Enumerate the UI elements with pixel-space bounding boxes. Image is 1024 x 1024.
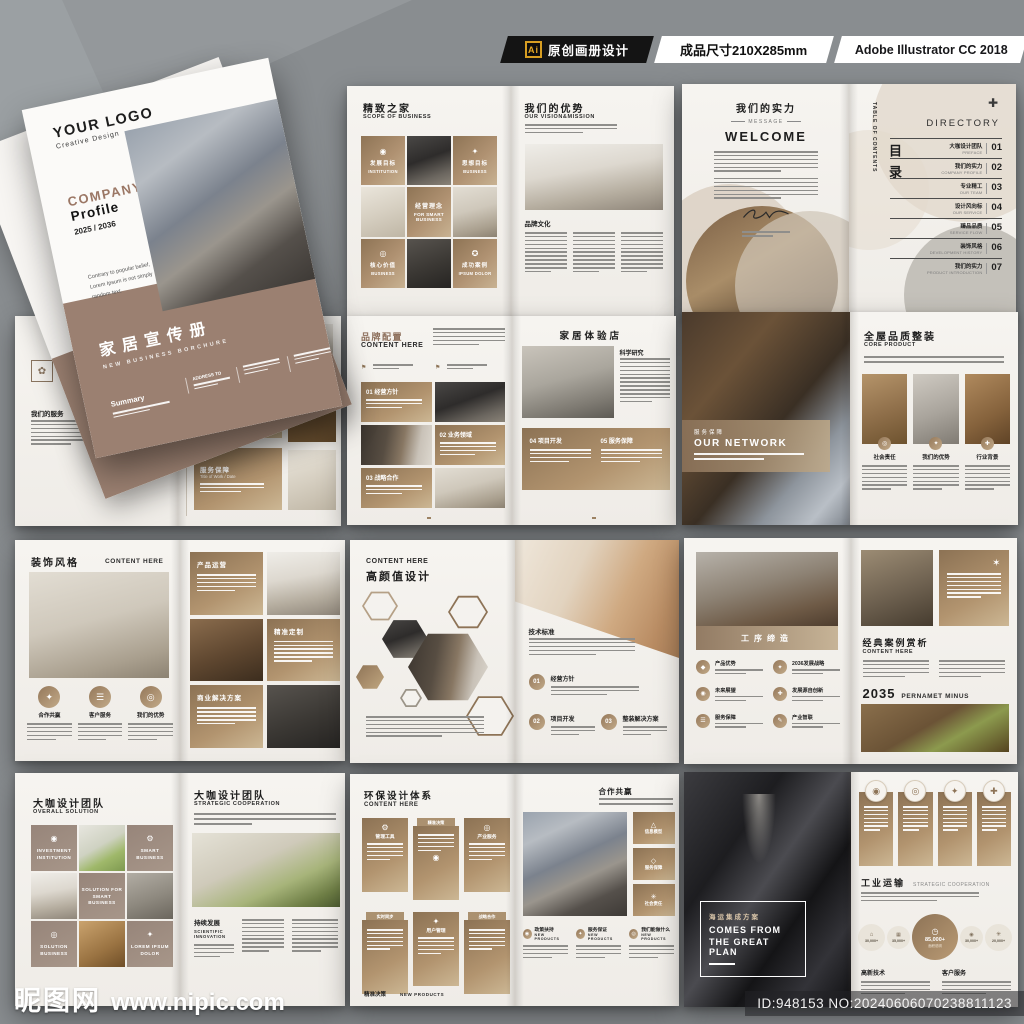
- adobe-illustrator-icon: Ai: [525, 41, 542, 58]
- photo-hallway: [190, 619, 263, 682]
- photo-tv-wall: [696, 552, 838, 626]
- panel-col: 04 项目开发: [530, 436, 591, 482]
- spread-design-hex: CONTENT HERE 高颜值设计 技术标准 01 经营方针 02 项目开发 …: [350, 540, 679, 763]
- spread-industrial: 海运集成方案 COMES FROM THE GREAT PLAN ◉ ◎ ✦ ✚…: [684, 772, 1018, 1007]
- spread-brand-config: 品牌配置 CONTENT HERE ⚑ ⚑ 01 经营方针 02 业务领域 03…: [347, 316, 676, 525]
- header-software-segment: Adobe Illustrator CC 2018: [834, 36, 1024, 63]
- section-block: 持续发展 SCIENTIFIC INNOVATION: [194, 917, 234, 960]
- feature: ☰服务保障: [696, 714, 765, 731]
- side-card: ✳社会责任: [633, 884, 675, 916]
- photo-modern-space: [361, 425, 432, 465]
- page-title: 大咖设计团队: [194, 787, 266, 802]
- section-title: 我们的服务: [31, 408, 64, 418]
- page-left: 工序缔造 ◆产品优势 ✦2036发展战略 ◉未来展望 ✚发展源自创新 ☰服务保障…: [684, 538, 851, 764]
- paragraph-lines: [714, 178, 818, 199]
- pillar: ✚: [977, 780, 1011, 866]
- page-left-photo: 海运集成方案 COMES FROM THE GREAT PLAN: [684, 772, 851, 1007]
- text-column: [573, 232, 615, 275]
- eco-card: ✦用户管理: [413, 912, 459, 994]
- text-column: [242, 919, 284, 954]
- feature-grid: ◆产品优势 ✦2036发展战略 ◉未来展望 ✚发展源自创新 ☰服务保障 ✎产业智…: [696, 660, 842, 730]
- page-title: 精致之家: [363, 100, 411, 115]
- text-column: [621, 232, 663, 275]
- welcome-heading: WELCOME: [706, 129, 826, 144]
- stat-circle: ▦35,000+: [887, 926, 910, 949]
- spread-eco-design: 环保设计体系 CONTENT HERE ⚙管理工具 精准决策◉ ◎产业服务 实时…: [350, 774, 679, 1006]
- page-subtitle: OUR VISION&MISSION: [525, 114, 595, 120]
- tile-grid: ◉发展目标INSTITUTION ✦思想目标BUSINESS 经营理念FOR S…: [361, 136, 497, 288]
- page-subtitle: CORE PRODUCT: [864, 342, 916, 348]
- home-icon: ⌂: [870, 932, 874, 938]
- network-icon: ✶: [947, 558, 1001, 569]
- page-subtitle: CONTENT HERE: [366, 558, 428, 565]
- tile-vision: ✦思想目标BUSINESS: [453, 136, 497, 185]
- spread-classic-cases: 工序缔造 ◆产品优势 ✦2036发展战略 ◉未来展望 ✚发展源自创新 ☰服务保障…: [684, 538, 1017, 764]
- directory-list: 大咖设计团队PREFACE01 我们的实力COMPANY PROFILE02 专…: [890, 138, 1002, 278]
- plus-icon: ✚: [988, 96, 998, 110]
- clock-icon: ◷: [932, 927, 939, 936]
- directory-item: 大咖设计团队PREFACE01: [890, 138, 1002, 158]
- header-size-segment: 成品尺寸210X285mm: [654, 36, 834, 63]
- brown-card: 商业解决方案: [190, 685, 263, 748]
- rule-line: [194, 823, 284, 827]
- network-band: 服务保障 OUR NETWORK: [682, 420, 830, 472]
- feature: ✎产业智联: [773, 714, 842, 731]
- model-icon: △: [651, 821, 656, 829]
- page-left: 我们的实力 MESSAGE WELCOME: [682, 84, 849, 321]
- directory-item: 臻品品质SERVICE FLOW05: [890, 218, 1002, 238]
- tile-lorem: ✦LOREM IPSUM DOLOR: [127, 921, 173, 967]
- bottom-item: ◉政策扶持NEW PRODUCTS: [523, 926, 568, 961]
- stats-row: ⌂30,000+ ▦35,000+ ◷85,000+面积说明 ◉30,000+ …: [857, 914, 1013, 960]
- text-column: [939, 660, 1005, 679]
- section-title: 技术标准: [529, 626, 555, 636]
- page-number-mark: [427, 517, 431, 519]
- team-icon: ◉: [418, 853, 454, 862]
- mini-lines: [447, 364, 487, 372]
- watermark: 昵图网 www.nipic.com: [14, 979, 285, 1018]
- bottom-item: ◎我们能做什么NEW PRODUCTS: [629, 926, 674, 961]
- photo-closet: [407, 239, 451, 288]
- photo-lobby: [861, 550, 933, 626]
- brown-card: ✶: [939, 550, 1009, 626]
- chart-icon: ✦: [773, 660, 787, 674]
- directory-item: 我们的实力COMPANY PROFILE02: [890, 158, 1002, 178]
- section-title: 品牌文化: [525, 218, 551, 228]
- page-subtitle: CONTENT HERE: [361, 342, 423, 349]
- rule-lines: [599, 798, 673, 808]
- card-grid: 01 经营方针 02 业务领域 03 战略合作: [361, 382, 505, 508]
- hex-outline: [448, 594, 488, 630]
- photo-green-room: [79, 825, 125, 871]
- photo-room: [453, 187, 497, 236]
- photo-living: [31, 873, 77, 919]
- policy-icon: ◉: [523, 929, 532, 939]
- page-subtitle: SCOPE OF BUSINESS: [363, 114, 431, 120]
- watermark-site-name: 昵图网: [14, 979, 101, 1018]
- card-lines: [947, 573, 1001, 598]
- rule-lines: [861, 892, 979, 904]
- telescope-icon: ◉: [696, 687, 710, 701]
- page-right: 产品运营 精准定制 商业解决方案: [180, 540, 345, 761]
- team-icon: ✦: [147, 931, 154, 939]
- photo-dark-room: [267, 685, 340, 748]
- feature: ◆产品优势: [696, 660, 765, 677]
- band-lines: [694, 453, 804, 460]
- badge-icon: ◎: [878, 437, 891, 450]
- photo-bathroom: [913, 374, 958, 444]
- column: ✚ 行业背景: [965, 374, 1010, 492]
- pillar: ◎: [898, 780, 932, 866]
- dev-panel: 04 项目开发 05 服务保障: [522, 428, 670, 490]
- photo-columns: ◎ 社会责任 ✦ 我们的优势 ✚ 行业背景: [862, 374, 1010, 492]
- badge-icon: ✚: [981, 437, 994, 450]
- overlay-frame: 海运集成方案 COMES FROM THE GREAT PLAN: [700, 901, 806, 977]
- page-left: 大咖设计团队 OVERALL SOLUTION ◉INVESTMENT INST…: [15, 773, 180, 1006]
- tile-philosophy: 经营理念FOR SMART BUSINESS: [407, 187, 451, 236]
- page-right: 家居体验店 科学研究 04 项目开发 05 服务保障: [512, 316, 677, 525]
- photo-showroom: [525, 144, 663, 210]
- spread-our-network: 服务保障 OUR NETWORK 全屋品质整装 CORE PRODUCT ◎ 社…: [682, 312, 1018, 525]
- watermark-id: ID:948153 NO:20240606070238811123: [745, 991, 1024, 1016]
- page-title: 全屋品质整装: [864, 328, 936, 343]
- photo-dining: [523, 812, 627, 916]
- tile-goal: ◉发展目标INSTITUTION: [361, 136, 405, 185]
- lock-icon: ◉: [865, 780, 887, 802]
- toc-vertical-en: TABLE OF CONTENTS: [871, 102, 877, 173]
- photo-stone-wall: [127, 873, 173, 919]
- photo-staircase: [79, 921, 125, 967]
- guarantee-icon: ✦: [576, 929, 585, 939]
- feature: ◉未来展望: [696, 687, 765, 704]
- page-subtitle: CONTENT HERE: [364, 802, 419, 808]
- stat-circle: ✳20,000+: [985, 924, 1012, 951]
- pillar: ◉: [859, 780, 893, 866]
- step-row: 02 项目开发 03 整装解决方案: [529, 714, 667, 738]
- feature: ✦2036发展战略: [773, 660, 842, 677]
- pillar-cards: ◉ ◎ ✦ ✚: [859, 780, 1011, 866]
- recycle-icon: ◎: [140, 686, 162, 708]
- signature-icon: [740, 205, 792, 223]
- text-column: [292, 919, 338, 954]
- eco-card: 实时同步: [362, 912, 408, 994]
- photo-green-kitchen: [192, 833, 340, 907]
- page-title: 我们的实力: [706, 100, 826, 115]
- page-right: TABLE OF CONTENTS 目录 ✚ DIRECTORY 大咖设计团队P…: [849, 84, 1016, 321]
- hex-outline: [400, 688, 422, 708]
- column: ◎ 社会责任: [862, 374, 907, 492]
- text-column: [863, 660, 929, 679]
- page-right: 我们的优势 OUR VISION&MISSION 品牌文化: [511, 86, 675, 316]
- rule-lines: [864, 356, 1004, 366]
- innovation-icon: ✚: [773, 687, 787, 701]
- text-lines: [529, 638, 635, 657]
- handshake-icon: ✦: [38, 686, 60, 708]
- photo-living: [361, 187, 405, 236]
- question-icon: ◎: [629, 929, 638, 939]
- spread-decor-style: 装饰风格 CONTENT HERE ✦合作共赢 ☰客户服务 ◎我们的优势 产品运…: [15, 540, 345, 761]
- header-size-label: 成品尺寸210X285mm: [680, 40, 807, 59]
- header-origin-segment: Ai原创画册设计: [500, 36, 654, 63]
- photo-bedroom: [435, 468, 506, 508]
- text-lines: [913, 465, 958, 490]
- spread-design-team: 大咖设计团队 OVERALL SOLUTION ◉INVESTMENT INST…: [15, 773, 345, 1006]
- photo-showcase: [861, 704, 1009, 752]
- bottom-item: ✦服务保证NEW PRODUCTS: [576, 926, 621, 961]
- page-title: 家居体验店: [560, 328, 623, 342]
- message-tag: MESSAGE: [706, 119, 826, 125]
- stat-circle-main: ◷85,000+面积说明: [912, 914, 958, 960]
- stat-circle: ⌂30,000+: [858, 924, 885, 951]
- paragraph-lines: [366, 716, 484, 739]
- year-heading: 2035 PERNAMET MINUS: [863, 686, 970, 701]
- photo-lounge: [288, 450, 336, 510]
- pillar: ✦: [938, 780, 972, 866]
- gear-icon: ⚙: [367, 823, 403, 832]
- gear-icon: ⚙: [146, 835, 153, 843]
- mini-lines: [373, 364, 413, 372]
- numbered-card: 01 经营方针: [361, 382, 432, 422]
- eco-card: ◎产业服务: [464, 818, 510, 900]
- page-left: 环保设计体系 CONTENT HERE ⚙管理工具 精准决策◉ ◎产业服务 实时…: [350, 774, 515, 1006]
- page-subtitle: CONTENT HERE: [105, 558, 163, 565]
- page-title: 合作共赢: [599, 786, 633, 797]
- overlay-rule: [709, 963, 735, 965]
- page-right: 合作共赢 △信息模型 ◇服务保障 ✳社会责任 ◉政策扶持NEW PRODUCTS…: [515, 774, 680, 1006]
- flag-icon: ⚑: [361, 364, 366, 371]
- lamp-icon: ✦: [944, 780, 966, 802]
- idea-icon: ✦: [472, 148, 479, 156]
- text-column: [525, 232, 567, 275]
- stat-circle: ◉30,000+: [960, 926, 983, 949]
- page-left-photo: 服务保障 OUR NETWORK: [682, 312, 850, 525]
- page-subtitle: CONTENT HERE: [863, 649, 914, 655]
- tile-investment: ◉INVESTMENT INSTITUTION: [31, 825, 77, 871]
- hex-cluster: [356, 588, 508, 710]
- feature: ✚发展源自创新: [773, 687, 842, 704]
- page-left: 品牌配置 CONTENT HERE ⚑ ⚑ 01 经营方针 02 业务领域 03…: [347, 316, 512, 525]
- directory-item: 设计风向标OUR SERVICE04: [890, 198, 1002, 218]
- page-title: 高颜值设计: [366, 568, 431, 584]
- header-origin-label: 原创画册设计: [548, 40, 629, 59]
- tile-case: ✪成功案例IPSUM DOLOR: [453, 239, 497, 288]
- compass-icon: ◎: [380, 250, 387, 258]
- service-icon: ☰: [89, 686, 111, 708]
- spread-welcome-directory: 我们的实力 MESSAGE WELCOME TABLE OF CONTENTS …: [682, 84, 1016, 321]
- page-number-mark: [592, 517, 596, 519]
- coin-icon: ◉: [969, 932, 973, 938]
- page-title: 经典案例赏析: [863, 636, 929, 649]
- intro-lines: [433, 328, 505, 347]
- overlay-en2: THE GREAT PLAN: [709, 937, 797, 957]
- share-icon: ☰: [696, 714, 710, 728]
- spotlight-glow: [742, 794, 776, 864]
- page-left: 精致之家 SCOPE OF BUSINESS ◉发展目标INSTITUTION …: [347, 86, 511, 316]
- shield-icon: ◇: [651, 857, 656, 865]
- side-cards: △信息模型 ◇服务保障 ✳社会责任: [633, 812, 675, 916]
- person-icon: ◉: [51, 835, 58, 843]
- page-title: 装饰风格: [31, 554, 79, 569]
- photo-dark-loft: [435, 382, 506, 422]
- page-left: CONTENT HERE 高颜值设计: [350, 540, 515, 763]
- bottom-items: ◉政策扶持NEW PRODUCTS ✦服务保证NEW PRODUCTS ◎我们能…: [523, 926, 675, 961]
- eco-card: 战略合作: [464, 912, 510, 994]
- brown-card: 产品运营: [190, 552, 263, 615]
- nodes-icon: ✳: [651, 893, 657, 901]
- tile-business: ◎SOLUTION BUSINESS: [31, 921, 77, 967]
- section-title: 科学研究: [620, 348, 644, 357]
- grid-icon: ▦: [896, 932, 901, 938]
- header-software-label: Adobe Illustrator CC 2018: [855, 43, 1008, 57]
- text-lines: [862, 465, 907, 490]
- footer-heading: 精准决策 NEW PRODUCTS: [364, 990, 444, 998]
- heart-icon: ✚: [983, 780, 1005, 802]
- gem-icon: ◆: [696, 660, 710, 674]
- eco-card: ⚙管理工具: [362, 818, 408, 900]
- users-icon: ✦: [418, 917, 454, 926]
- hex-solid: [356, 664, 384, 690]
- tile-smart: ⚙SMART BUSINESS: [127, 825, 173, 871]
- numbered-card: 03 战略合作: [361, 468, 432, 508]
- pen-icon: ✎: [773, 714, 787, 728]
- orbit-icon: ◎: [469, 823, 505, 832]
- rule-lines: [194, 813, 336, 823]
- card-grid: 产品运营 精准定制 商业解决方案: [190, 552, 340, 748]
- feature: ☰客户服务: [78, 686, 123, 742]
- page-subtitle: OVERALL SOLUTION: [33, 809, 99, 815]
- directory-item: 专业精工OUR TEAM03: [890, 178, 1002, 198]
- page-left: 装饰风格 CONTENT HERE ✦合作共赢 ☰客户服务 ◎我们的优势: [15, 540, 180, 761]
- photo-bedroom: [29, 572, 169, 678]
- overlay-en1: COMES FROM: [709, 925, 797, 935]
- side-card: ◇服务保障: [633, 848, 675, 880]
- card-grid: ⚙管理工具 精准决策◉ ◎产业服务 实时同步 ✦用户管理 战略合作: [362, 818, 510, 994]
- numbered-card: 02 业务领域: [435, 425, 506, 465]
- section-heading: 工业运输 STRATEGIC COOPERATION: [861, 876, 990, 889]
- page-right: 全屋品质整装 CORE PRODUCT ◎ 社会责任 ✦ 我们的优势 ✚ 行业背…: [850, 312, 1018, 525]
- tile-value: ◎核心价值BUSINESS: [361, 239, 405, 288]
- paragraph-lines: [714, 151, 818, 172]
- page-title: 我们的优势: [525, 100, 585, 115]
- flag-icon: ⚑: [435, 364, 440, 371]
- spread-scope-of-business: 精致之家 SCOPE OF BUSINESS ◉发展目标INSTITUTION …: [347, 86, 674, 316]
- side-card: △信息模型: [633, 812, 675, 844]
- feature-columns: ✦合作共赢 ☰客户服务 ◎我们的优势: [27, 686, 173, 742]
- eco-card: 精准决策◉: [413, 818, 459, 900]
- feature: ✦合作共赢: [27, 686, 72, 742]
- watermark-site-url: www.nipic.com: [111, 989, 285, 1017]
- band-en: OUR NETWORK: [694, 438, 818, 449]
- column: ✦ 我们的优势: [913, 374, 958, 492]
- panel-col: 05 服务保障: [601, 436, 662, 482]
- page-right: ✶ 经典案例赏析 CONTENT HERE 2035 PERNAMET MINU…: [851, 538, 1018, 764]
- trophy-icon: ✪: [472, 250, 479, 258]
- photo-wardrobe: [862, 374, 907, 444]
- page-right: ◉ ◎ ✦ ✚ 工业运输 STRATEGIC COOPERATION ⌂30,0…: [851, 772, 1018, 1007]
- photo-loft: [407, 136, 451, 185]
- text-lines: [965, 465, 1010, 490]
- page-right: 大咖设计团队 STRATEGIC COOPERATION 持续发展 SCIENT…: [180, 773, 345, 1006]
- card-lines: [200, 483, 264, 492]
- hex-outline: [362, 590, 398, 622]
- caption-lines: [742, 231, 790, 236]
- directory-item: 我们的实力PRODUCT INTRODUCTION07: [890, 258, 1002, 278]
- directory-item: 装饰风格DEVELOPMENT HISTORY06: [890, 238, 1002, 258]
- spark-icon: ✳: [996, 931, 1001, 938]
- target-icon: ◉: [380, 148, 387, 156]
- brown-card: 精准定制: [267, 619, 340, 682]
- tile-grid: ◉INVESTMENT INSTITUTION ⚙SMART BUSINESS …: [31, 825, 173, 967]
- text-lines: [525, 124, 617, 136]
- photo-white-sofa: [267, 552, 340, 615]
- band-cn: 服务保障: [694, 428, 818, 436]
- pin-icon: ◎: [51, 931, 58, 939]
- page-title: 大咖设计团队: [33, 795, 105, 810]
- overlay-cn: 海运集成方案: [709, 911, 797, 921]
- page-title: 环保设计体系: [364, 788, 433, 802]
- directory-heading: DIRECTORY: [926, 118, 1000, 129]
- text-column: [620, 358, 670, 405]
- photo-teaset: [965, 374, 1010, 444]
- page-subtitle: STRATEGIC COOPERATION: [194, 801, 280, 807]
- badge-icon: ✦: [929, 437, 942, 450]
- feature: ◎我们的优势: [128, 686, 173, 742]
- process-band: 工序缔造: [696, 626, 838, 650]
- tile-solution: SOLUTION FOR SMART BUSINESS: [79, 873, 125, 919]
- brand-icon: ✿: [31, 360, 53, 382]
- page-right: 技术标准 01 经营方针 02 项目开发 03 整装解决方案: [515, 540, 680, 763]
- step-row: 01 经营方针: [529, 674, 639, 698]
- photo-experience-store: [522, 346, 614, 418]
